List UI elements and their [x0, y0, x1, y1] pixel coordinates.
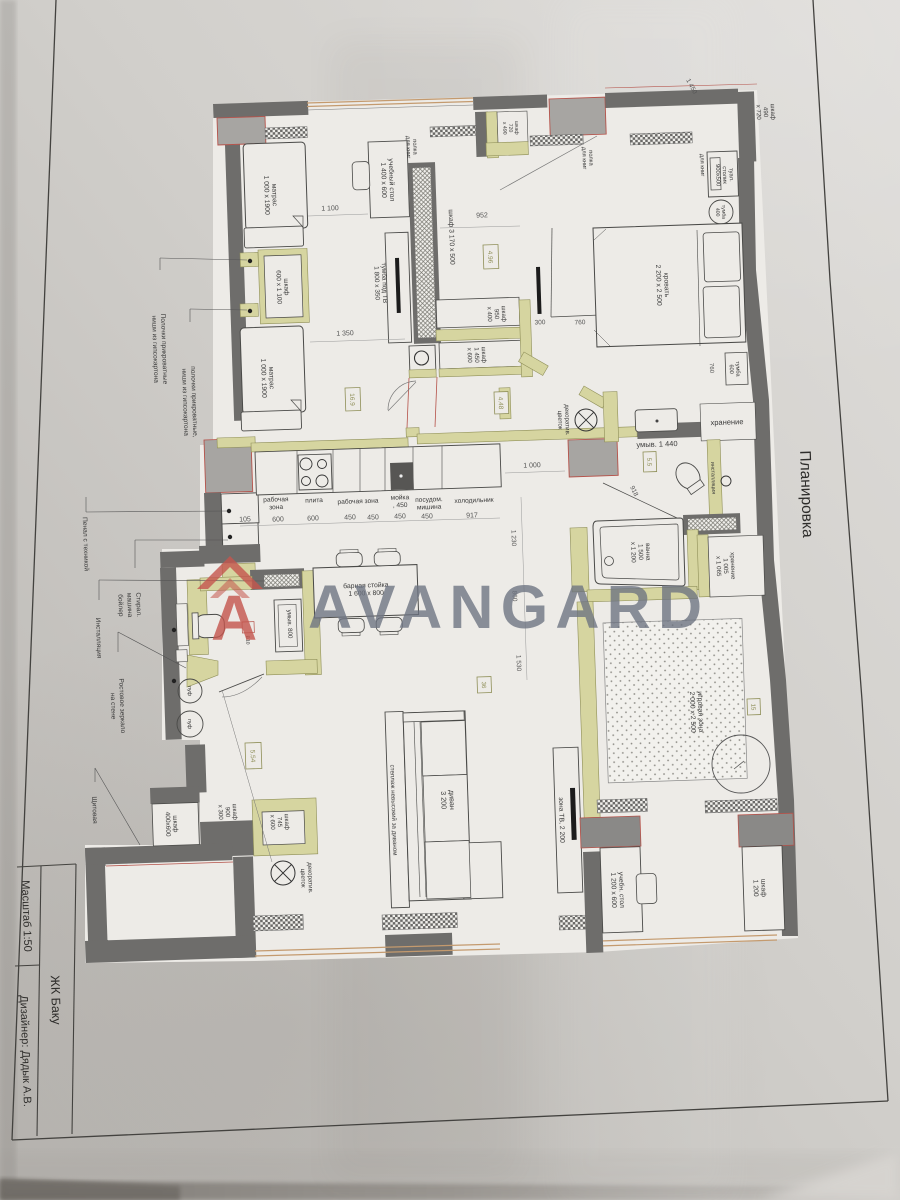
svg-text:4.96: 4.96 — [486, 251, 493, 264]
svg-text:мойка: мойка — [390, 493, 409, 502]
svg-text:105: 105 — [239, 516, 251, 523]
svg-text:952: 952 — [476, 212, 488, 219]
svg-text:х 400: х 400 — [485, 307, 493, 323]
svg-text:ванна: ванна — [644, 543, 652, 561]
svg-text:рабочая зона: рабочая зона — [337, 497, 379, 506]
svg-text:450: 450 — [394, 513, 406, 520]
svg-text:A: A — [211, 582, 257, 654]
svg-text:400х600: 400х600 — [164, 812, 172, 838]
svg-text:1 000: 1 000 — [523, 462, 541, 470]
svg-text:450: 450 — [421, 513, 433, 520]
svg-text:1 800 х 350: 1 800 х 350 — [372, 266, 380, 301]
svg-text:15: 15 — [749, 703, 756, 711]
svg-text:Щитовая: Щитовая — [90, 796, 98, 824]
svg-text:1 200 х 600: 1 200 х 600 — [609, 872, 617, 908]
svg-text:1 400 х 600: 1 400 х 600 — [379, 162, 387, 198]
svg-text:шкаф: шкаф — [282, 278, 290, 296]
svg-text:600: 600 — [728, 364, 734, 374]
svg-text:х 720: х 720 — [754, 105, 762, 121]
svg-text:полка: полка — [587, 150, 594, 166]
svg-text:2 000 х 2 500: 2 000 х 2 500 — [688, 691, 696, 733]
svg-text:х 1 065: х 1 065 — [714, 556, 722, 577]
svg-text:туал.: туал. — [727, 168, 733, 182]
svg-text:столик: столик — [721, 166, 728, 184]
svg-text:1 000 х 1900: 1 000 х 1900 — [259, 358, 267, 398]
svg-text:450: 450 — [344, 514, 356, 521]
svg-text:1 230: 1 230 — [509, 530, 517, 547]
svg-text:х 600: х 600 — [465, 348, 473, 364]
svg-text:умыв. 800: умыв. 800 — [285, 610, 293, 640]
svg-text:, 450: , 450 — [393, 502, 408, 509]
svg-text:1 100: 1 100 — [321, 205, 339, 213]
svg-text:умыв. 1 440: умыв. 1 440 — [636, 439, 677, 449]
svg-text:мишина: мишина — [417, 504, 442, 512]
svg-text:рабочая: рабочая — [263, 495, 289, 504]
svg-text:400: 400 — [714, 208, 720, 217]
svg-text:4.48: 4.48 — [497, 397, 504, 410]
svg-text:3 200: 3 200 — [439, 791, 449, 809]
svg-text:для книг: для книг — [404, 136, 411, 159]
svg-text:пуф: пуф — [186, 719, 192, 730]
svg-text:тумба: тумба — [734, 361, 741, 377]
svg-text:2 200 х 2 500: 2 200 х 2 500 — [654, 264, 662, 306]
svg-text:600 х 1 100: 600 х 1 100 — [274, 270, 282, 305]
svg-text:16.9: 16.9 — [348, 393, 355, 406]
svg-text:450: 450 — [367, 514, 379, 521]
svg-text:для книг: для книг — [698, 154, 705, 177]
svg-text:300: 300 — [534, 319, 545, 326]
svg-text:760: 760 — [708, 363, 714, 374]
svg-text:1 000 х 1900: 1 000 х 1900 — [262, 175, 270, 215]
svg-text:шкаф: шкаф — [171, 815, 179, 833]
svg-text:матрас: матрас — [270, 184, 278, 207]
svg-text:760: 760 — [574, 319, 585, 326]
svg-text:посудом.: посудом. — [415, 496, 443, 504]
svg-text:полка: полка — [411, 139, 418, 155]
svg-text:хранение: хранение — [710, 417, 743, 427]
svg-text:кровать: кровать — [662, 273, 670, 298]
svg-text:цветок: цветок — [556, 411, 564, 430]
svg-text:х 300: х 300 — [216, 805, 224, 821]
svg-text:Планировка: Планировка — [796, 450, 816, 538]
svg-text:холодильник: холодильник — [454, 497, 494, 505]
svg-text:для книг: для книг — [580, 147, 587, 170]
svg-text:плита: плита — [305, 497, 323, 505]
svg-text:х 490: х 490 — [501, 122, 507, 135]
svg-text:Масштаб 1:50: Масштаб 1:50 — [19, 880, 33, 952]
svg-text:900х500: 900х500 — [714, 164, 721, 186]
svg-text:ЖК Баку: ЖК Баку — [48, 975, 64, 1025]
svg-text:х 600: х 600 — [268, 815, 276, 831]
svg-text:учебный стол: учебный стол — [387, 158, 396, 201]
svg-text:Стирал.: Стирал. — [134, 592, 142, 617]
svg-text:шкаф: шкаф — [759, 879, 767, 898]
svg-text:36: 36 — [480, 681, 487, 689]
svg-text:1 530: 1 530 — [514, 655, 522, 672]
svg-text:5.54: 5.54 — [249, 750, 256, 763]
svg-text:учебн. стол: учебн. стол — [617, 872, 626, 908]
svg-text:600: 600 — [272, 516, 284, 523]
svg-text:машина: машина — [125, 593, 133, 618]
svg-text:600: 600 — [307, 515, 319, 522]
svg-text:1 200: 1 200 — [751, 880, 759, 897]
svg-text:1 350: 1 350 — [336, 330, 354, 338]
svg-text:бойлер: бойлер — [116, 594, 125, 617]
svg-text:1 500: 1 500 — [636, 544, 644, 561]
svg-text:Инсталляция: Инсталляция — [94, 618, 102, 659]
svg-text:AVANGARD: AVANGARD — [308, 573, 702, 641]
svg-text:5.5: 5.5 — [645, 458, 652, 467]
svg-text:инсталляция: инсталляция — [709, 462, 716, 495]
svg-text:цветок: цветок — [299, 869, 307, 888]
svg-text:зона: зона — [269, 504, 283, 511]
svg-text:пуф: пуф — [186, 686, 192, 697]
svg-text:х 1 200: х 1 200 — [629, 542, 637, 564]
svg-text:на стене: на стене — [109, 693, 117, 720]
svg-text:матрас: матрас — [267, 367, 275, 390]
